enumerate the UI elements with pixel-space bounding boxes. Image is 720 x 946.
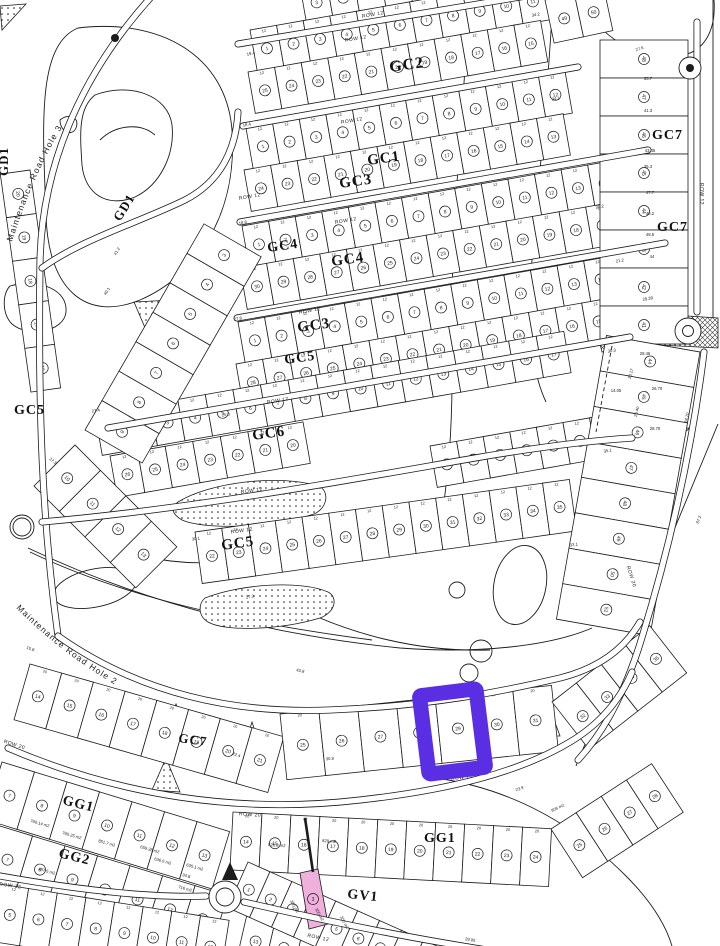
lot-width-dim: 12 <box>126 906 131 911</box>
lot-width-dim: 12 <box>548 117 553 122</box>
dimension-label: 43.45 <box>645 148 656 153</box>
lot-width-dim: 20 <box>535 829 539 833</box>
dimension-label: 44 <box>650 254 655 259</box>
lot-width-dim: 12 <box>595 260 600 265</box>
lot-width-dim: 12 <box>122 455 127 460</box>
lot-width-dim: 12 <box>287 426 292 431</box>
lot-width-dim: 12 <box>40 892 45 897</box>
lot-width-dim: 12 <box>305 257 310 262</box>
lot-width-dim: 12 <box>205 440 210 445</box>
lot-width-dim: 12 <box>417 99 422 104</box>
lot-number: 27 <box>343 534 350 541</box>
lot-width-dim: 12 <box>436 288 441 293</box>
lot-width-dim: 12 <box>287 520 292 525</box>
lot-width-dim: 20 <box>361 820 365 824</box>
lot-number: 19 <box>20 234 27 241</box>
lot-width-dim: 12 <box>493 345 498 350</box>
lot-width-dim: 12 <box>335 155 340 160</box>
block-label: GC7 <box>652 128 683 143</box>
lot-width-dim: 12 <box>542 269 547 274</box>
lot-width-dim: 12 <box>419 43 424 48</box>
lot-number: 48 <box>640 56 646 62</box>
dimension-label: 14.05 <box>611 388 622 393</box>
lot-number: 22 <box>209 553 216 560</box>
lot-area-label: 829 m2 <box>322 838 337 844</box>
block-label: GG1 <box>424 831 456 846</box>
lot-number: 24 <box>262 546 269 553</box>
block-label: GC7 <box>657 220 688 235</box>
lot-width-dim: 12 <box>356 302 361 307</box>
lot-width-dim: 12 <box>489 279 494 284</box>
lot-number: 22 <box>475 852 481 858</box>
lot-width-dim: 12 <box>232 435 237 440</box>
lot-width-dim: 12 <box>249 321 254 326</box>
lot-number: 14 <box>243 839 249 845</box>
lot-width-dim: 12 <box>413 197 418 202</box>
lot-number: 30 <box>423 523 430 530</box>
lot-width-dim: 12 <box>383 364 388 369</box>
lot-width-dim: 12 <box>521 122 526 127</box>
dimension-label: 26.70 <box>652 386 663 391</box>
mini-roundabout-outer <box>675 318 701 344</box>
lot-width-dim: 12 <box>548 426 553 431</box>
lot-number: 18 <box>26 278 33 285</box>
lot-width-dim: 12 <box>333 211 338 216</box>
lot-width-dim: 12 <box>329 307 334 312</box>
dimension-label: 48.5 <box>646 232 655 237</box>
lot-width-dim: 12 <box>386 201 391 206</box>
lot-width-dim: 12 <box>341 15 346 20</box>
lot-number: 25 <box>289 542 296 549</box>
lot-width-dim: 12 <box>441 445 446 450</box>
lot-width-dim: 12 <box>394 505 399 510</box>
lot-width-dim: 12 <box>546 173 551 178</box>
lot-width-dim: 12 <box>253 225 258 230</box>
lot-width-dim: 12 <box>521 431 526 436</box>
roundabout-outer <box>209 881 241 913</box>
lot-width-dim: 12 <box>300 379 305 384</box>
lot-width-dim: 12 <box>447 497 452 502</box>
lot-width-dim: 20 <box>530 689 535 693</box>
lot-width-dim: 12 <box>247 363 252 368</box>
lot-width-dim: 12 <box>442 136 447 141</box>
lot-number: 11 <box>530 0 536 6</box>
lot-width-dim: 12 <box>260 524 265 529</box>
lot-number: 17 <box>330 844 336 850</box>
lot-width-dim: 20 <box>332 819 336 823</box>
lot-width-dim: 12 <box>519 178 524 183</box>
lot-width-dim: 12 <box>382 297 387 302</box>
row-label: ROW 12 <box>698 183 704 205</box>
lot-width-dim: 12 <box>309 159 314 164</box>
dimension-label: 41.3 <box>644 108 653 113</box>
lot-width-dim: 12 <box>440 192 445 197</box>
lot-width-dim: 12 <box>355 369 360 374</box>
lot-number: 20 <box>417 848 423 854</box>
lot-number: 33 <box>503 512 510 519</box>
lot-width-dim: 12 <box>499 29 504 34</box>
lot-width-dim: 12 <box>523 80 528 85</box>
lot-width-dim: 12 <box>390 103 395 108</box>
lot-number: 24 <box>533 855 539 861</box>
lot-width-dim: 12 <box>155 910 160 915</box>
lot-number: 23 <box>504 853 510 859</box>
lot-number: 11 <box>178 940 184 946</box>
lot-width-dim: 12 <box>364 108 369 113</box>
lot-width-dim: 12 <box>515 274 520 279</box>
lot-width-dim: 12 <box>544 215 549 220</box>
lot-width-dim: 12 <box>69 896 74 901</box>
lot-width-dim: 12 <box>284 122 289 127</box>
lot-number: 46 <box>640 132 646 138</box>
lot-width-dim: 12 <box>574 421 579 426</box>
lot-width-dim: 12 <box>464 229 469 234</box>
plat-map-container: 3124125126127128129121012111211221231241… <box>0 0 720 946</box>
lot-number: 29 <box>455 726 461 733</box>
lot-width-dim: 12 <box>328 374 333 379</box>
dimension-label: 48.2 <box>646 211 655 216</box>
lot-width-dim: 12 <box>407 335 412 340</box>
lot-number: 28 <box>369 531 376 538</box>
lot-width-dim: 12 <box>366 52 371 57</box>
lot-width-dim: 12 <box>177 445 182 450</box>
lot-width-dim: 12 <box>392 47 397 52</box>
dimension-label: 35.3 <box>644 164 653 169</box>
lot-width-dim: 12 <box>501 490 506 495</box>
lot-width-dim: 12 <box>311 117 316 122</box>
block-label: GD1 <box>0 147 11 176</box>
dimension-label: 33.7 <box>644 76 653 81</box>
lot-width-dim: 12 <box>313 516 318 521</box>
lot-width-dim: 12 <box>286 66 291 71</box>
lot-number: 30 <box>494 722 500 729</box>
lot-width-dim: 12 <box>217 393 222 398</box>
lot-width-dim: 12 <box>460 325 465 330</box>
lot-width-dim: 20 <box>506 828 510 832</box>
dimension-label: 47.7 <box>646 190 655 195</box>
lot-width-dim: 12 <box>274 358 279 363</box>
lot-width-dim: 12 <box>434 330 439 335</box>
lot-width-dim: 12 <box>190 398 195 403</box>
lot-number: 27 <box>377 734 383 741</box>
lot-width-dim: 12 <box>384 243 389 248</box>
lot-width-dim: 12 <box>438 354 443 359</box>
plat-map: 3124125126127128129121012111211221231241… <box>0 0 720 946</box>
lot-width-dim: 12 <box>550 75 555 80</box>
lot-number: 19 <box>388 847 394 853</box>
lot-width-dim: 12 <box>497 85 502 90</box>
lot-width-dim: 12 <box>491 225 496 230</box>
lot-width-dim: 12 <box>468 440 473 445</box>
lot-width-dim: 12 <box>420 501 425 506</box>
block-label: GC5 <box>14 403 45 418</box>
lot-width-dim: 12 <box>380 339 385 344</box>
lot-width-dim: 12 <box>593 302 598 307</box>
lot-width-dim: 12 <box>261 29 266 34</box>
lot-width-dim: 12 <box>548 335 553 340</box>
lot-number: 35 <box>557 504 564 511</box>
lot-width-dim: 12 <box>360 206 365 211</box>
dimension-label: 28.46 <box>640 351 651 356</box>
lot-width-dim: 12 <box>474 494 479 499</box>
lot-width-dim: 12 <box>470 89 475 94</box>
lot-width-dim: 12 <box>280 220 285 225</box>
lot-number: 31 <box>450 519 457 526</box>
lot-width-dim: 12 <box>495 127 500 132</box>
lot-width-dim: 12 <box>257 127 262 132</box>
lot-width-dim: 12 <box>567 307 572 312</box>
lot-width-dim: 12 <box>259 71 264 76</box>
lot-number: 29 <box>396 527 403 534</box>
lot-width-dim: 12 <box>554 482 559 487</box>
lot-number: 45 <box>640 170 646 176</box>
lot-width-dim: 12 <box>411 239 416 244</box>
lot-width-dim: 12 <box>466 187 471 192</box>
lot-width-dim: 12 <box>438 234 443 239</box>
lot-width-dim: 12 <box>569 265 574 270</box>
lot-width-dim: 12 <box>571 211 576 216</box>
lot-width-dim: 12 <box>354 344 359 349</box>
lot-width-dim: 12 <box>272 384 277 389</box>
lot-width-dim: 12 <box>327 349 332 354</box>
dimension-label: 28.70 <box>650 426 661 431</box>
lot-width-dim: 12 <box>540 311 545 316</box>
lot-width-dim: 12 <box>339 57 344 62</box>
lot-width-dim: 12 <box>446 38 451 43</box>
lot-width-dim: 12 <box>465 349 470 354</box>
lot-width-dim: 12 <box>206 531 211 536</box>
lot-width-dim: 12 <box>495 435 500 440</box>
lot-number: 32 <box>476 516 483 523</box>
lot-number: 18 <box>359 845 365 851</box>
pink-lot-number: 3 <box>312 897 315 903</box>
lot-width-dim: 12 <box>307 215 312 220</box>
lot-width-dim: 12 <box>415 141 420 146</box>
lot-number: 47 <box>640 94 646 100</box>
lot-width-dim: 12 <box>255 169 260 174</box>
lot-width-dim: 12 <box>282 164 287 169</box>
lot-width-dim: 12 <box>367 509 372 514</box>
lot-width-dim: 12 <box>421 1 426 6</box>
lot-width-dim: 12 <box>340 513 345 518</box>
lot-width-dim: 20 <box>419 823 423 827</box>
lot-width-dim: 12 <box>394 5 399 10</box>
dimension-label: 30.8 <box>326 756 335 762</box>
lot-width-dim: 12 <box>278 262 283 267</box>
lot-number: 31 <box>533 718 539 725</box>
lot-width-dim: 12 <box>487 321 492 326</box>
lot-width-dim: 12 <box>513 316 518 321</box>
lot-width-dim: 12 <box>212 919 217 924</box>
lot-width-dim: 12 <box>521 340 526 345</box>
lot-width-dim: 12 <box>409 293 414 298</box>
lot-number: 26 <box>316 538 323 545</box>
lot-number: 21 <box>446 850 452 856</box>
lot-number: 26 <box>339 738 345 745</box>
lot-width-dim: 12 <box>573 169 578 174</box>
lot-width-dim: 12 <box>444 94 449 99</box>
lot-width-dim: 12 <box>472 33 477 38</box>
lot-width-dim: 20 <box>274 816 278 820</box>
lot-width-dim: 12 <box>97 901 102 906</box>
lot-width-dim: 12 <box>410 359 415 364</box>
lot-number: 34 <box>530 508 537 515</box>
lot-width-dim: 12 <box>245 388 250 393</box>
lot-width-dim: 12 <box>525 24 530 29</box>
lot-number: 41 <box>640 322 646 328</box>
road-end-marker <box>111 34 119 42</box>
lot-width-dim: 12 <box>527 486 532 491</box>
lot-width-dim: 12 <box>150 450 155 455</box>
lot-number: 42 <box>640 284 646 290</box>
lot-width-dim: 20 <box>477 826 481 830</box>
lot-width-dim: 12 <box>183 915 188 920</box>
lot-width-dim: 12 <box>337 113 342 118</box>
lot-width-dim: 20 <box>390 822 394 826</box>
lot-width-dim: 12 <box>468 131 473 136</box>
lot-number: 25 <box>300 742 306 749</box>
lot-width-dim: 20 <box>448 825 452 829</box>
lot-width-dim: 12 <box>276 316 281 321</box>
lot-number: 16 <box>301 842 307 848</box>
lot-width-dim: 12 <box>313 61 318 66</box>
lot-width-dim: 12 <box>315 19 320 24</box>
lot-width-dim: 12 <box>462 283 467 288</box>
lot-width-dim: 12 <box>517 220 522 225</box>
lot-width-dim: 12 <box>288 24 293 29</box>
culdesac-center <box>686 64 694 72</box>
lot-width-dim: 12 <box>493 183 498 188</box>
